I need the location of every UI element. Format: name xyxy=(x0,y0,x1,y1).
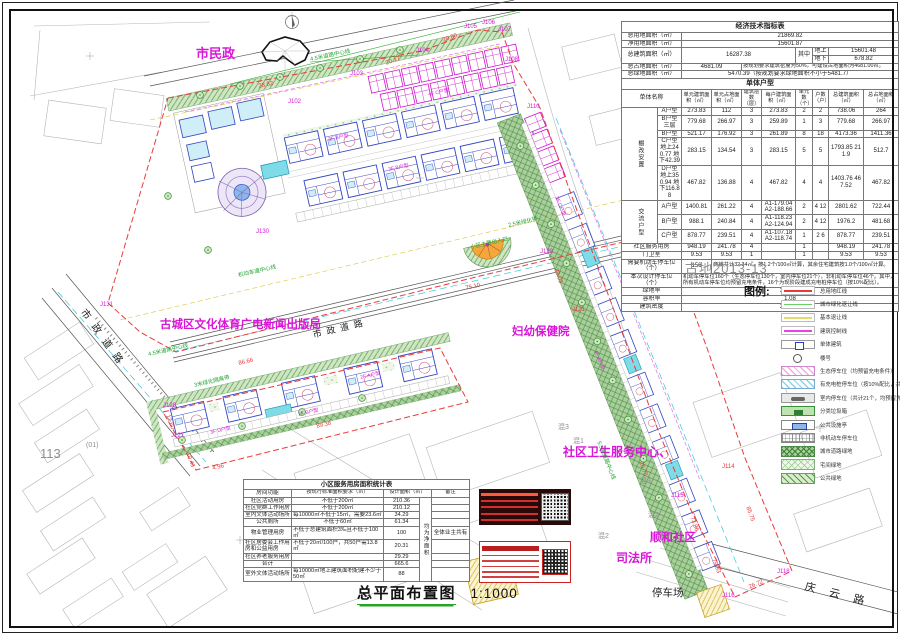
sheet-border-inner xyxy=(9,9,894,628)
drawing-sheet: 市民政古城区文化体育广电新闻出版局妇幼保健院社区卫生服务中心、顺和社区司法所停车… xyxy=(0,0,900,635)
